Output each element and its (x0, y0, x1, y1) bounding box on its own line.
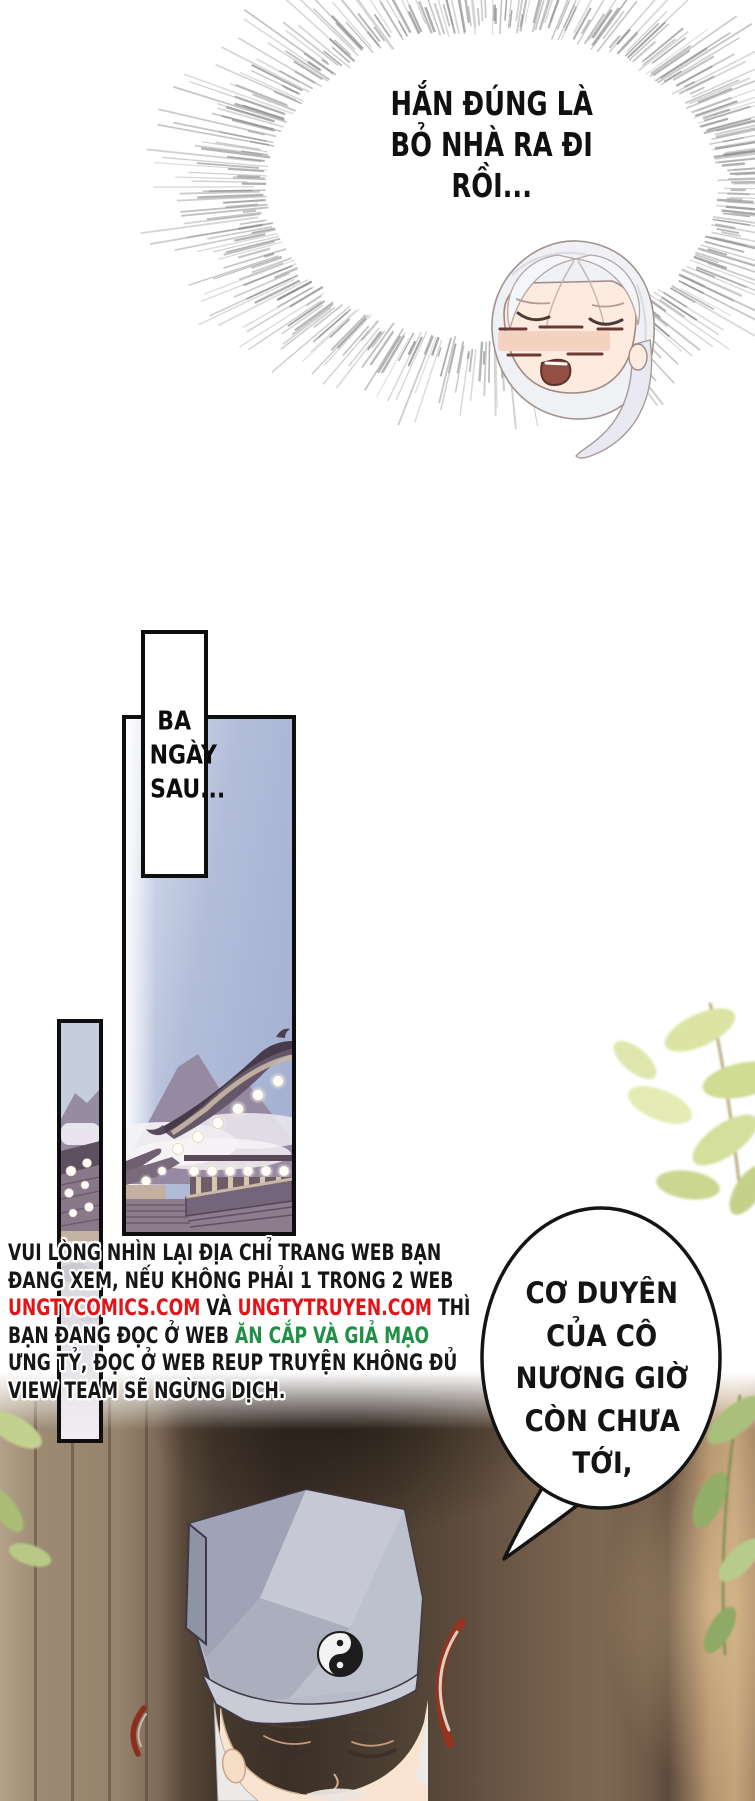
piracy-notice-line: UNGTYCOMICS.COM VÀ UNGTYTRUYEN.COM THÌ (8, 1295, 470, 1323)
bubble-line-4: CÒN CHƯA (524, 1400, 679, 1443)
piracy-notice-line: VIEW TEAM SẼ NGỪNG DỊCH. (8, 1378, 470, 1406)
caption-line-2: NGÀY (150, 737, 217, 772)
burst-line-2: BỎ NHÀ RA ĐI (391, 124, 593, 165)
piracy-notice-line: ĐANG XEM, NẾU KHÔNG PHẢI 1 TRONG 2 WEB (8, 1268, 470, 1296)
red-swoosh-left (133, 1708, 146, 1754)
caption-line-1: BA (158, 703, 192, 738)
piracy-notice-line: ƯNG TỶ, ĐỌC Ở WEB REUP TRUYỆN KHÔNG ĐỦ (8, 1350, 470, 1378)
temple-beam (184, 1155, 292, 1161)
piracy-notice-line: VUI LÒNG NHÌN LẠI ĐỊA CHỈ TRANG WEB BẠN (8, 1240, 470, 1268)
piracy-notice-line: BẠN ĐANG ĐỌC Ở WEB ĂN CẮP VÀ GIẢ MẠO (8, 1323, 470, 1351)
burst-line-3: RỒI... (452, 165, 533, 206)
chibi-blush-band (498, 331, 610, 351)
red-swoosh-right (439, 1622, 462, 1744)
chibi-character-head (452, 225, 692, 480)
bubble-line-5: TỚI, (572, 1442, 632, 1485)
taoist-character (110, 1478, 500, 1801)
caption-box: BA NGÀY SAU... (141, 630, 208, 878)
character-eyes-closed (262, 1736, 395, 1757)
character-nose (333, 1774, 338, 1790)
slice-mist (61, 1123, 100, 1145)
taoist-hat (186, 1490, 422, 1723)
leaf-cluster-bottom-left (0, 1390, 60, 1575)
piracy-notice: VUI LÒNG NHÌN LẠI ĐỊA CHỈ TRANG WEB BẠNĐ… (8, 1240, 601, 1406)
yin-yang-icon (318, 1632, 362, 1676)
chibi-mouth (541, 360, 570, 385)
caption-line-3: SAU... (150, 771, 225, 806)
hat-flap (186, 1524, 206, 1644)
chibi-ear (629, 344, 647, 370)
burst-bubble-text: HẮN ĐÚNG LÀ BỎ NHÀ RA ĐI RỒI... (302, 83, 682, 206)
burst-line-1: HẮN ĐÚNG LÀ (391, 83, 593, 124)
